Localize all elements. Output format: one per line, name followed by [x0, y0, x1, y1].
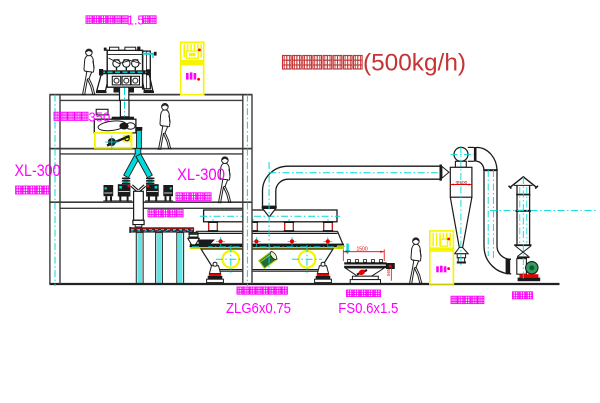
svg-text:(500kg/h): (500kg/h)	[363, 50, 466, 77]
svg-text:1.5: 1.5	[127, 13, 144, 27]
svg-text:565: 565	[386, 268, 391, 276]
svg-text:ZLG6x0.75: ZLG6x0.75	[226, 300, 291, 317]
svg-text:Φ500: Φ500	[456, 180, 468, 186]
svg-text:350: 350	[89, 110, 111, 125]
svg-text:1500: 1500	[357, 247, 368, 253]
svg-text:XL-300: XL-300	[15, 161, 61, 180]
svg-text:FS0.6x1.5: FS0.6x1.5	[338, 300, 398, 317]
svg-text:XL-300: XL-300	[177, 165, 225, 184]
